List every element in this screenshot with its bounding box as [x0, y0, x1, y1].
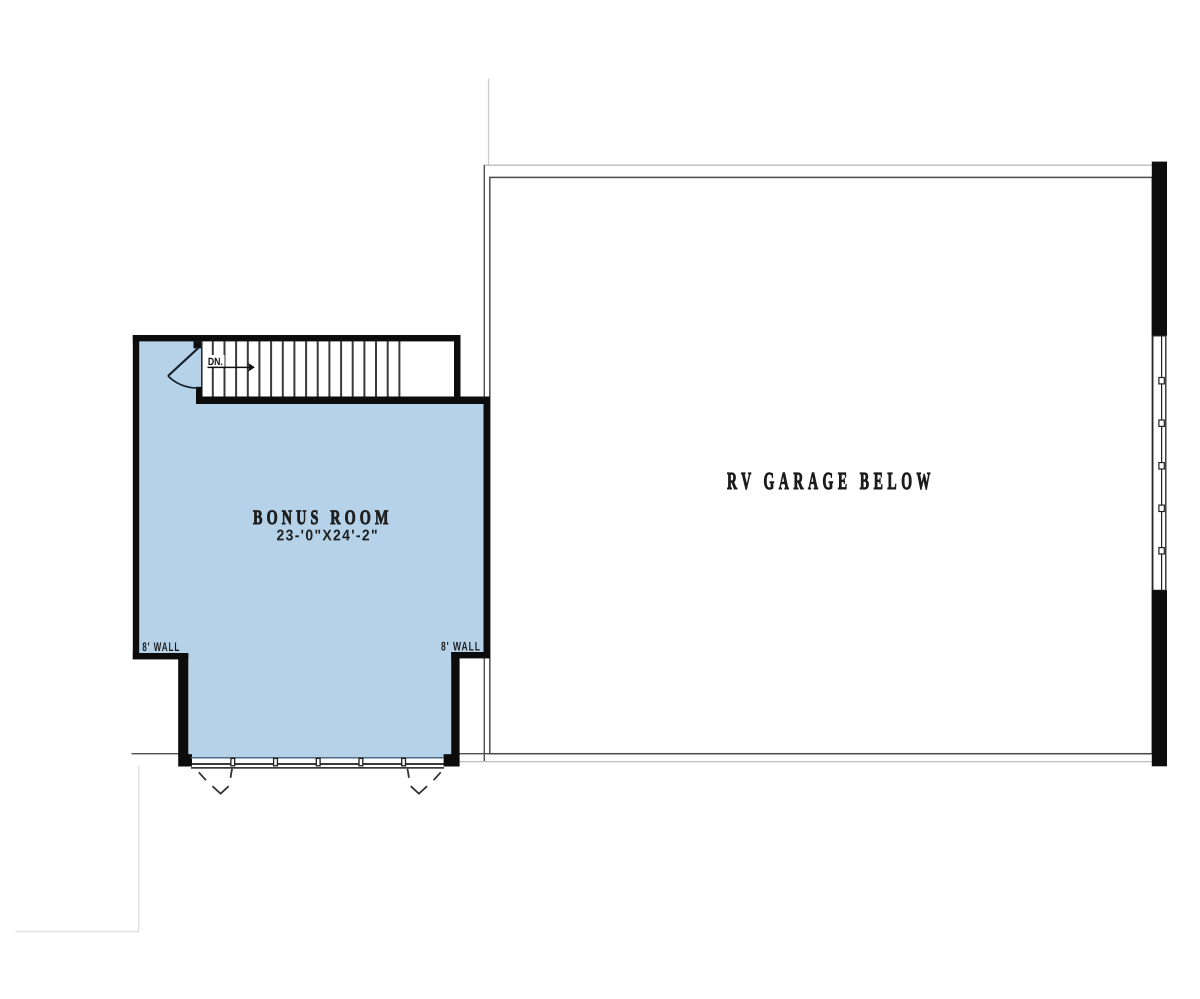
- svg-text:8' WALL: 8' WALL: [441, 639, 481, 653]
- svg-text:DN.: DN.: [208, 356, 223, 368]
- svg-text:23-'0"X24'-2": 23-'0"X24'-2": [276, 527, 379, 544]
- svg-text:8' WALL: 8' WALL: [142, 640, 180, 654]
- svg-text:BONUS ROOM: BONUS ROOM: [253, 507, 393, 529]
- svg-text:RV GARAGE BELOW: RV GARAGE BELOW: [727, 468, 935, 495]
